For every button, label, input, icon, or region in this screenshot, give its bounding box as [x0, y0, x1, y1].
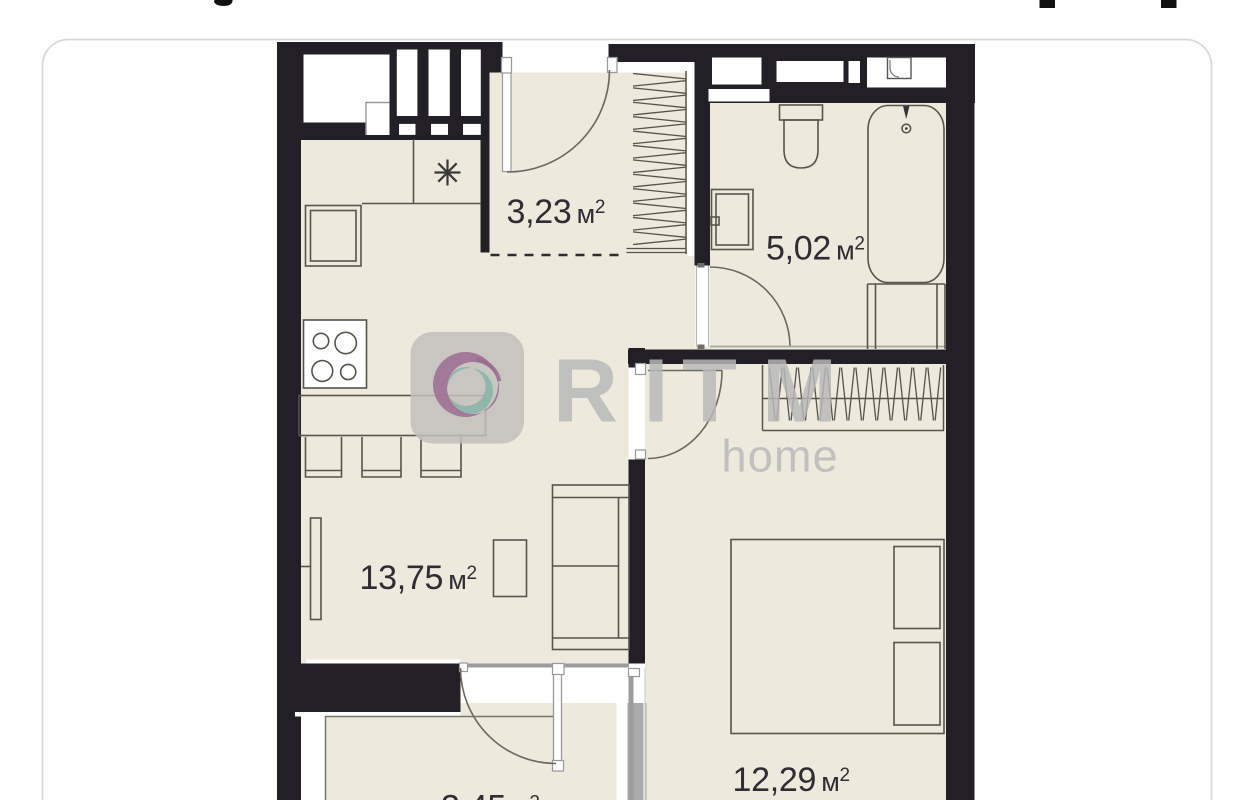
svg-text:I: I — [644, 342, 669, 442]
svg-text:3,23 м2: 3,23 м2 — [507, 193, 606, 231]
svg-text:M: M — [762, 342, 837, 442]
svg-text:T: T — [682, 342, 737, 442]
svg-text:5,02 м2: 5,02 м2 — [766, 230, 865, 268]
svg-text:home: home — [722, 431, 839, 482]
svg-text:13,75 м2: 13,75 м2 — [360, 559, 477, 597]
svg-text:12,29 м2: 12,29 м2 — [733, 761, 850, 799]
svg-text:R: R — [553, 342, 618, 442]
